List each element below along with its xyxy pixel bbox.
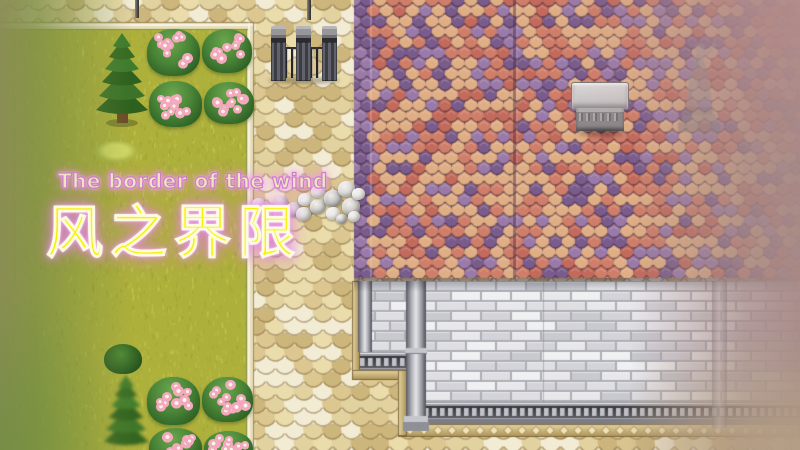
flower-icon [212,98,222,108]
flower-icon [174,444,183,450]
flower-bush-icon [204,82,254,124]
flower-bush-icon [147,29,200,76]
flower-bush-icon [202,29,252,73]
flower-icon [228,98,236,106]
flower-icon [184,401,194,411]
lamp-post-icon [307,0,311,20]
game-title-english: The border of the wind [58,169,358,197]
flower-icon [225,436,233,444]
flower-icon [208,439,218,449]
gate-post-icon [271,26,286,81]
flower-icon [216,54,227,65]
flower-icon [172,34,181,43]
flower-icon [236,35,245,44]
flower-icon [222,393,231,402]
flower-icon [231,402,242,413]
flower-icon [231,42,239,50]
lamp-post-icon [135,0,139,18]
flower-bush-icon [202,377,253,422]
flower-icon [175,108,185,118]
flower-icon [162,432,173,443]
left-bottom-blur-vignette [0,280,120,450]
flower-icon [161,111,170,120]
flower-icon [209,390,218,399]
iron-gate-sprite [266,24,344,86]
gate-post-icon [322,26,337,81]
game-title-chinese: 风之界限 [46,202,376,268]
flower-icon [163,49,171,57]
flower-icon [234,442,243,450]
flower-icon [236,50,245,59]
flower-icon [185,437,194,446]
gate-post-icon [296,26,311,81]
game-title-screen[interactable]: The border of the wind 风之界限 [0,0,800,450]
flower-icon [222,43,232,53]
flower-icon [225,380,236,391]
statue-icon [670,40,728,134]
flower-icon [237,94,246,103]
flower-icon [218,107,228,117]
bottom-right-blur-vignette [600,330,800,450]
flower-bush-icon [147,377,200,425]
flower-bush-icon [149,81,202,127]
flower-icon [182,53,193,64]
